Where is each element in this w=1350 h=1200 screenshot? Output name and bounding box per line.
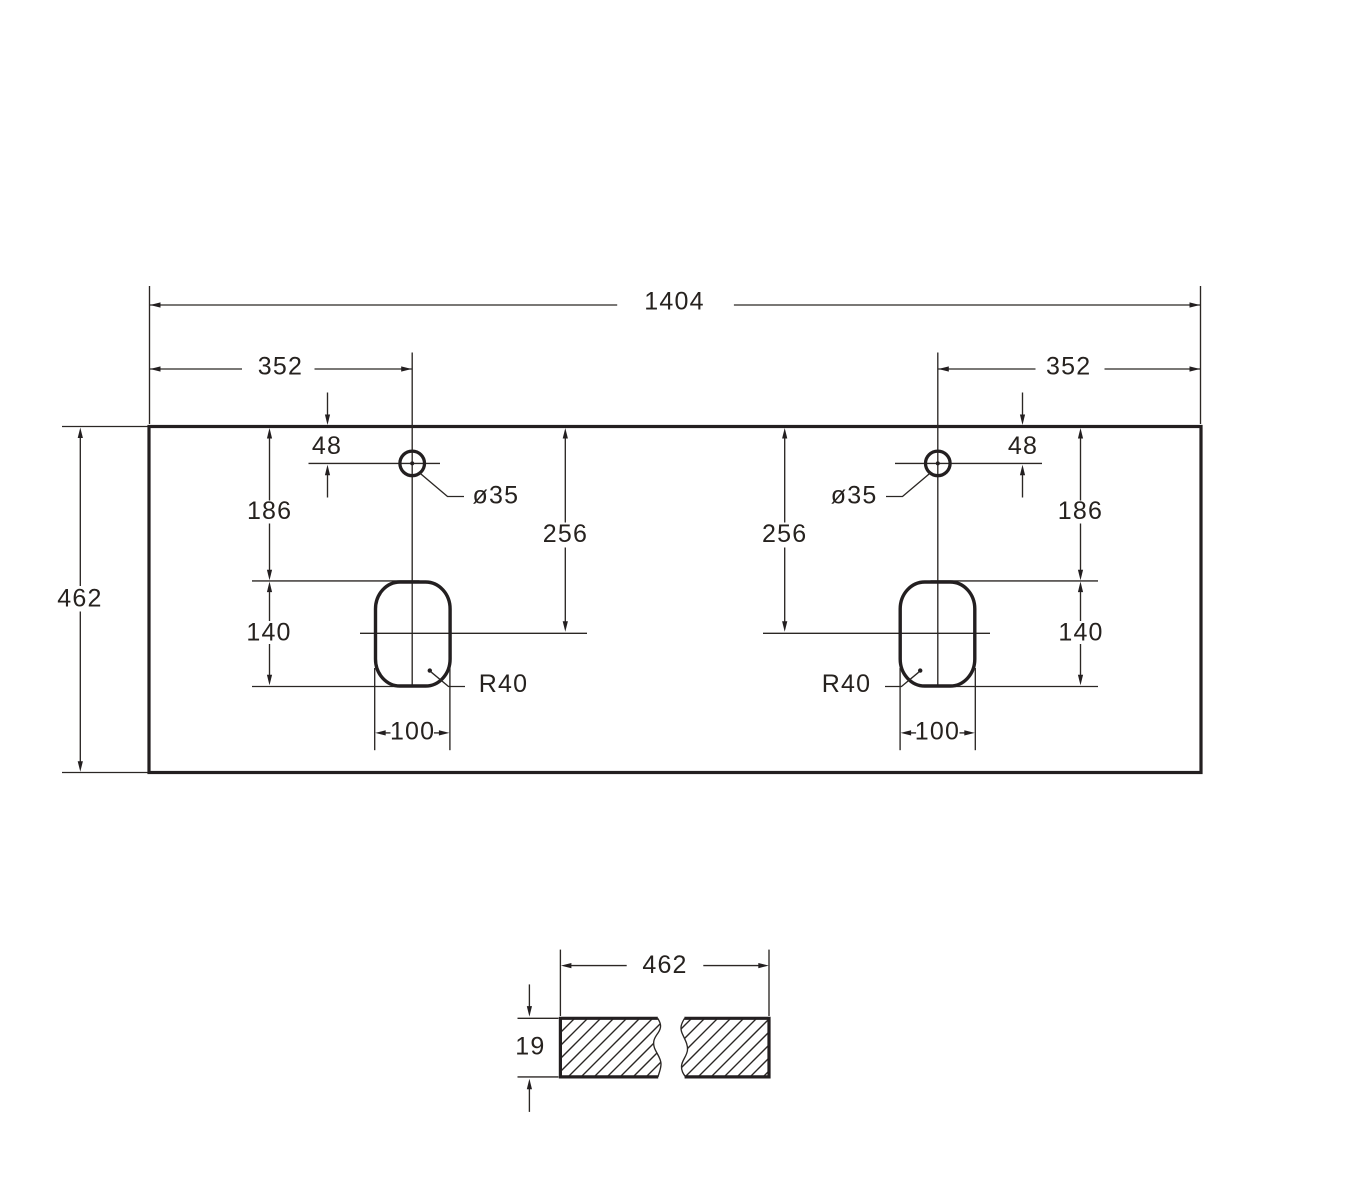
svg-text:ø35: ø35	[473, 481, 520, 509]
svg-text:462: 462	[642, 951, 687, 979]
svg-text:256: 256	[543, 520, 588, 548]
svg-text:186: 186	[247, 497, 292, 525]
svg-text:140: 140	[1058, 619, 1103, 647]
svg-text:19: 19	[515, 1033, 545, 1061]
svg-text:352: 352	[1046, 353, 1091, 381]
svg-text:462: 462	[57, 585, 102, 613]
svg-text:256: 256	[762, 520, 807, 548]
svg-text:ø35: ø35	[831, 481, 878, 509]
svg-text:186: 186	[1058, 497, 1103, 525]
svg-text:48: 48	[1008, 432, 1038, 460]
svg-text:352: 352	[258, 353, 303, 381]
svg-text:100: 100	[915, 718, 960, 746]
svg-text:R40: R40	[822, 670, 871, 698]
svg-text:R40: R40	[479, 670, 528, 698]
svg-text:1404: 1404	[644, 288, 704, 316]
svg-text:48: 48	[312, 432, 342, 460]
svg-text:140: 140	[246, 619, 291, 647]
svg-text:100: 100	[390, 718, 435, 746]
